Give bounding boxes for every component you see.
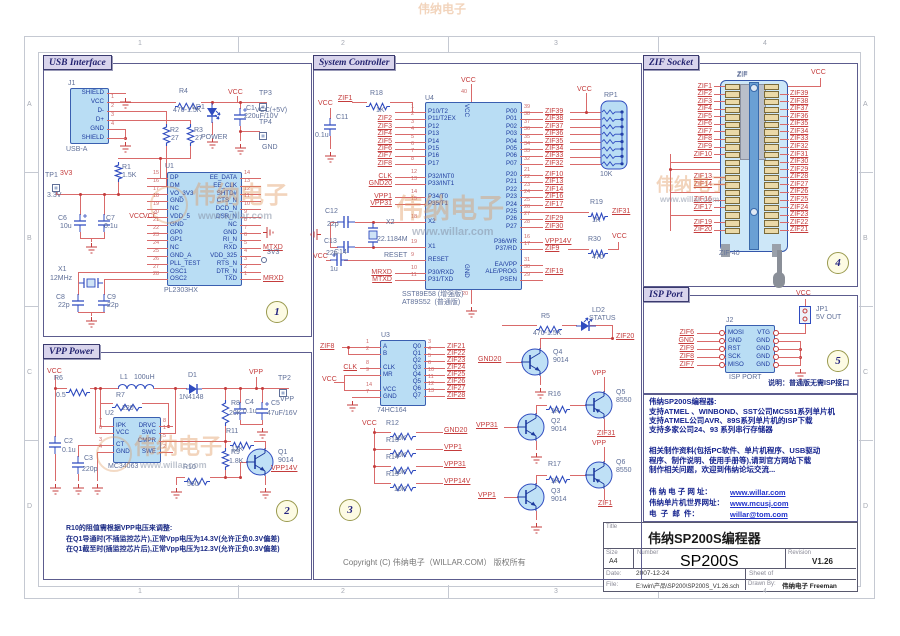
watermark-logo (150, 186, 188, 224)
pin-number: 33 (524, 149, 530, 155)
pin-number: 2 (366, 347, 369, 353)
pin-stub (107, 129, 126, 130)
schematic-label: ZIF8 (320, 343, 334, 350)
schematic-label: Q2 (551, 418, 560, 425)
pin-name: MISO (728, 362, 744, 368)
schematic-label: 22p (327, 221, 339, 228)
pin-number: 1 (366, 340, 369, 346)
schematic-label: ZIF (737, 71, 748, 78)
net-label-ZIF38: ZIF38 (790, 98, 808, 105)
schematic-label: TP3 (259, 90, 272, 97)
schematic-label: ZIF31 (612, 208, 630, 215)
schematic-label: R12 (386, 420, 399, 427)
net-label-ZIF3: ZIF3 (698, 98, 712, 105)
testpoint-TP3 (259, 98, 267, 106)
schematic-label: C6 (58, 215, 67, 222)
zif-pad (764, 212, 779, 219)
net-label-ZIF21: ZIF21 (790, 226, 808, 233)
ground-symbol (91, 482, 104, 493)
pin-name: RXD (224, 245, 237, 251)
junction-dot (239, 476, 242, 479)
pin-stub (395, 280, 426, 281)
net-label-ZIF23: ZIF23 (790, 211, 808, 218)
pin-number: 29 (524, 273, 530, 279)
net-label-ZIF7: ZIF7 (378, 152, 392, 159)
ground-symbol (256, 426, 269, 437)
schematic-label: LD2 (592, 307, 605, 314)
net-label-ZIF29: ZIF29 (545, 215, 563, 222)
net-label-ZIF30: ZIF30 (545, 223, 563, 230)
pin-number: 26 (153, 257, 159, 263)
wire (604, 377, 605, 392)
pin-name: GND (756, 346, 770, 352)
zif-pad (764, 228, 779, 235)
wire (78, 474, 79, 481)
net-label-ZIF31: ZIF31 (790, 151, 808, 158)
schematic-label: R5 (541, 313, 550, 320)
pin-name: GND (756, 354, 770, 360)
zif-stub (780, 101, 789, 102)
net-label-ZIF22: ZIF22 (447, 350, 465, 357)
schematic-label: C7 (106, 215, 115, 222)
pin-name: P06 (506, 153, 517, 159)
sheet-title: 伟纳SP200S编程器 (648, 528, 761, 547)
net-label-MRXD: MRXD (263, 275, 284, 282)
pin-number: 4 (244, 249, 247, 255)
schematic-label: VPP31 (444, 461, 466, 468)
schematic-label: R14 (386, 454, 399, 461)
resistor-R30 (588, 245, 608, 254)
schematic-label: 220p (82, 466, 98, 473)
wire (202, 388, 289, 389)
net-label-ZIF13: ZIF13 (545, 178, 563, 185)
transistor-Q4 (521, 348, 549, 376)
schematic-label: ISP PORT (729, 374, 761, 381)
pin-stub (520, 280, 543, 281)
net-label-ZIF34: ZIF34 (790, 128, 808, 135)
pin-name: P23 (506, 194, 517, 200)
pin-name: SCK (728, 354, 741, 360)
ground-symbol (72, 482, 85, 493)
ground-symbol (119, 140, 132, 151)
zif-stub (714, 124, 725, 125)
schematic-label: JP1 (816, 306, 828, 313)
frame-tick (859, 306, 873, 307)
pin-number: 6 (428, 361, 431, 367)
schematic-label: TP2 (278, 375, 291, 382)
frame-tick (24, 172, 38, 173)
frame-tick (238, 585, 239, 598)
resistor-R11 (230, 437, 254, 446)
schematic-label: ZIF1 (598, 500, 612, 507)
pin-name: NC (170, 245, 179, 251)
wire (504, 497, 518, 498)
schematic-label: 12MHz (50, 275, 72, 282)
wire (604, 489, 605, 500)
pin-name: GND (383, 394, 397, 400)
led-LD1 (203, 103, 221, 123)
net-label-ZIF35: ZIF35 (790, 120, 808, 127)
pin-circle (773, 330, 779, 336)
pin-stub (107, 102, 126, 103)
wire (342, 347, 361, 348)
wire (471, 288, 472, 304)
resistor-R5 (536, 321, 562, 330)
schematic-label: 74HC164 (377, 407, 407, 414)
schematic-label: Q1 (278, 449, 287, 456)
schematic-label: 0.1u (104, 223, 118, 230)
schematic-label: U3 (381, 332, 390, 339)
net-label-ZIF10: ZIF10 (694, 151, 712, 158)
schematic-label: U1 (165, 163, 174, 170)
ground-symbol (85, 241, 98, 252)
zif-stub (714, 86, 725, 87)
pin-number: 32 (524, 157, 530, 163)
schematic-label: C12 (325, 208, 338, 215)
diode-D1 (186, 382, 202, 394)
net-label-ZIF30: ZIF30 (790, 158, 808, 165)
schematic-label: C11 (336, 114, 348, 121)
schematic-label: J1 (68, 80, 75, 87)
zif-pad (764, 167, 779, 174)
section-tag-zif-socket: ZIF Socket (643, 55, 699, 70)
pin-number: 23 (524, 183, 530, 189)
schematic-label: 1K (551, 408, 560, 415)
junction-dot (669, 168, 672, 171)
junction-dot (611, 337, 614, 340)
wire (416, 466, 443, 467)
zif-pad (764, 137, 779, 144)
zif-pad (725, 167, 740, 174)
net-label-VCC: VCC (129, 213, 144, 220)
schematic-label: 0.1u (62, 447, 76, 454)
schematic-label: C9 (107, 294, 116, 301)
junction-dot (103, 193, 106, 196)
schematic-label: AT89S52 (普通版) (402, 299, 460, 306)
pin-name: EE_DATA (210, 175, 237, 181)
zif-pad (764, 152, 779, 159)
schematic-label: R15 (386, 471, 399, 478)
net-label-ZIF39: ZIF39 (545, 108, 563, 115)
schematic-label: C8 (56, 294, 65, 301)
schematic-label: 22.1184M (377, 236, 408, 243)
pin-name: NC (228, 222, 237, 228)
net-label-VPP14V: VPP14V (545, 238, 571, 245)
net-label-ZIF7: ZIF7 (680, 361, 694, 368)
ground-symbol (85, 315, 98, 326)
pin-number: 28 (524, 220, 530, 226)
zif-stub (780, 230, 789, 231)
pin-number: 12 (411, 170, 417, 176)
schematic-label: 8550 (616, 467, 632, 474)
chip-power-pin-label: VCC (463, 104, 470, 117)
pin-name: ALE/PROG (485, 269, 517, 275)
net-label-ZIF39: ZIF39 (790, 90, 808, 97)
net-label-ZIF9: ZIF9 (545, 245, 559, 252)
zif-pad (764, 190, 779, 197)
pin-name: P01 (506, 116, 517, 122)
zif-stub (780, 116, 789, 117)
section-tag-isp-port: ISP Port (643, 287, 689, 302)
pin-number: 28 (153, 272, 159, 278)
net-label-ZIF4: ZIF4 (378, 130, 392, 137)
schematic-label: POWER (201, 134, 227, 141)
ground-symbol (346, 399, 359, 410)
schematic-label: VCC (461, 77, 476, 84)
frame-tick (859, 440, 873, 441)
pin-circle (773, 354, 779, 360)
wire (536, 511, 537, 520)
pin-stub (240, 279, 261, 280)
pin-name: P16 (428, 153, 439, 159)
junction-dot (585, 111, 588, 114)
schematic-label: U4 (425, 95, 434, 102)
net-label-ZIF28: ZIF28 (447, 392, 465, 399)
pin-name: P26 (506, 216, 517, 222)
pin-number: 26 (524, 205, 530, 211)
pin-stub (360, 397, 381, 398)
pin-stub (520, 249, 543, 250)
zif-pad (764, 122, 779, 129)
wire (344, 390, 361, 391)
section-badge-2: 2 (276, 500, 298, 522)
pin-number: 30 (524, 265, 530, 271)
pin-number: 34 (524, 142, 530, 148)
ground-symbol (465, 305, 478, 316)
schematic-label: VPP (249, 369, 263, 376)
ground-symbol (530, 521, 543, 532)
wire (800, 341, 801, 366)
schematic-label: R8 (231, 400, 240, 407)
pin-name: P37/RD (495, 246, 517, 252)
net-label-ZIF26: ZIF26 (447, 378, 465, 385)
pin-stub (360, 368, 381, 369)
schematic-label: VCC (318, 100, 333, 107)
wire (352, 102, 367, 103)
schematic-label: Q4 (553, 349, 562, 356)
zone-row-label: A (863, 101, 868, 108)
net-label-ZIF17: ZIF17 (694, 204, 712, 211)
schematic-label: 1K (551, 478, 560, 485)
cap-C6 (73, 214, 87, 232)
zif-stub (714, 154, 725, 155)
schematic-label: 5V OUT (816, 314, 841, 321)
zif-screw (750, 84, 758, 92)
schematic-label: 1u (330, 266, 338, 273)
zif-pad (725, 152, 740, 159)
schematic-label: D1 (188, 372, 197, 379)
zif-stub (780, 94, 789, 95)
schematic-label: R2 (170, 127, 179, 134)
wire (176, 477, 177, 485)
watermark-logo (96, 436, 132, 472)
zif-stub (780, 177, 789, 178)
net-label-ZIF37: ZIF37 (790, 105, 808, 112)
schematic-label: R3 (194, 127, 203, 134)
pin-name: VTG (757, 330, 770, 336)
pin-number: 7 (244, 226, 247, 232)
pin-name: GND_A (170, 253, 191, 259)
wire (570, 157, 601, 158)
zif-stub (780, 154, 789, 155)
pin-number: 27 (153, 265, 159, 271)
transistor-Q1 (246, 448, 274, 476)
wire (95, 388, 96, 434)
wire (540, 376, 541, 385)
wire (504, 427, 518, 428)
zif-pad (725, 84, 740, 91)
net-label-ZIF38: ZIF38 (545, 115, 563, 122)
schematic-label: VPP14V (444, 478, 470, 485)
zif-pad (725, 107, 740, 114)
junction-dot (239, 130, 242, 133)
transistor-Q6 (585, 461, 613, 489)
net-label-CLK: CLK (343, 364, 357, 371)
resistor-R6 (66, 384, 90, 393)
pin-name: GND (728, 338, 742, 344)
wire (104, 279, 105, 295)
pin-name: MOSI (728, 330, 744, 336)
schematic-label: 1.5K (122, 172, 136, 179)
junction-dot (117, 193, 120, 196)
schematic-label: R30 (588, 236, 601, 243)
schematic-label: R4 (179, 88, 188, 95)
schematic-label: ZIF1 (338, 95, 352, 102)
schematic-label: VPP (592, 370, 606, 377)
pin-number: 1 (411, 105, 414, 111)
frame-tick (859, 172, 873, 173)
schematic-label: VCC(+5V) (255, 107, 287, 114)
wire (604, 419, 605, 430)
junction-dot (347, 346, 350, 349)
junction-dot (174, 387, 177, 390)
pin-name: P13 (428, 131, 439, 137)
pin-circle (773, 346, 779, 352)
wire (670, 215, 725, 216)
pin-stub (107, 93, 126, 94)
zif-stub (780, 131, 789, 132)
pin-stub (395, 184, 426, 185)
wire (166, 111, 167, 125)
net-label-ZIF20: ZIF20 (694, 226, 712, 233)
schematic-label: ZIF31 (597, 430, 615, 437)
zone-col-label: 4 (763, 40, 767, 47)
net-label-ZIF19: ZIF19 (545, 268, 563, 275)
wire (568, 249, 589, 250)
schematic-label: 27 (171, 135, 179, 142)
net-label-ZIF10: ZIF10 (545, 171, 563, 178)
net-label-ZIF23: ZIF23 (447, 357, 465, 364)
pin-circle (719, 362, 725, 368)
watermark-brand: 伟纳电子 (396, 196, 504, 223)
schematic-label: 22p (58, 302, 70, 309)
wire (542, 212, 589, 213)
schematic-label: ZIF20 (616, 333, 634, 340)
pin-stub (520, 227, 543, 228)
schematic-label: RP1 (604, 92, 618, 99)
wire (160, 158, 161, 179)
pin-number: 7 (99, 419, 102, 425)
pin-name: VCC (91, 99, 104, 105)
wire (330, 136, 331, 149)
net-label-ZIF25: ZIF25 (790, 196, 808, 203)
pin-name: B (383, 351, 387, 357)
pin-stub (107, 120, 126, 121)
transistor-Q5 (585, 391, 613, 419)
zif-pad (725, 144, 740, 151)
pin-name: P17 (428, 161, 439, 167)
net-label-ZIF33: ZIF33 (545, 152, 563, 159)
schematic-label: J2 (726, 317, 733, 324)
wire (118, 158, 191, 159)
wire (570, 127, 601, 128)
junction-dot (239, 101, 242, 104)
pin-stub (360, 354, 381, 355)
pin-stub (107, 138, 126, 139)
pin-number: 6 (244, 233, 247, 239)
zif-stub (780, 124, 789, 125)
ground-symbol (170, 486, 183, 497)
pin-number: 24 (153, 241, 159, 247)
resistor-R19 (588, 208, 608, 217)
zif-stub (714, 116, 725, 117)
pin-name: VCC (116, 430, 129, 436)
net-label-ZIF19: ZIF19 (694, 219, 712, 226)
zif-stub (780, 207, 789, 208)
transistor-Q3 (517, 483, 545, 511)
zif-stub (780, 147, 789, 148)
net-label-ZIF6: ZIF6 (680, 329, 694, 336)
net-label-VPP1: VPP1 (374, 193, 392, 200)
net-label-ZIF21: ZIF21 (447, 343, 465, 350)
frame-tick (448, 36, 449, 52)
wire (570, 142, 601, 143)
pin-number: 3 (428, 340, 431, 346)
schematic-label: VCC (811, 69, 826, 76)
wire (344, 375, 361, 376)
pin-name: OSC2 (170, 276, 187, 282)
wire (265, 476, 266, 485)
junction-dot (99, 387, 102, 390)
schematic-label: 10K (600, 171, 612, 178)
schematic-label: VCC (362, 420, 377, 427)
zif-stub (780, 192, 789, 193)
wire (142, 403, 169, 404)
schematic-label: C13 (324, 238, 337, 245)
schematic-label: C5 (271, 400, 280, 407)
wire (416, 483, 443, 484)
schematic-label: GND (262, 144, 278, 151)
schematic-label: VPP (592, 440, 606, 447)
schematic-label: R1 (122, 164, 131, 171)
pin-number: 8 (366, 361, 369, 367)
pin-number: 3 (411, 120, 414, 126)
zif-stub (780, 109, 789, 110)
pin-name: D- (97, 108, 104, 114)
wire (502, 325, 537, 326)
net-label-VPP31: VPP31 (370, 200, 392, 207)
net-label-ZIF5: ZIF5 (378, 138, 392, 145)
section-tag-system-controller: System Controller (313, 55, 395, 70)
zif-pad (764, 107, 779, 114)
zif-center-slot (749, 82, 759, 250)
schematic-label: 40 (461, 90, 467, 96)
titleblock-revision-label: Revision (788, 550, 811, 556)
schematic-label: GND20 (444, 427, 467, 434)
pin-number: 15 (153, 171, 159, 177)
wire (416, 432, 443, 433)
schematic-label: C3 (84, 455, 93, 462)
